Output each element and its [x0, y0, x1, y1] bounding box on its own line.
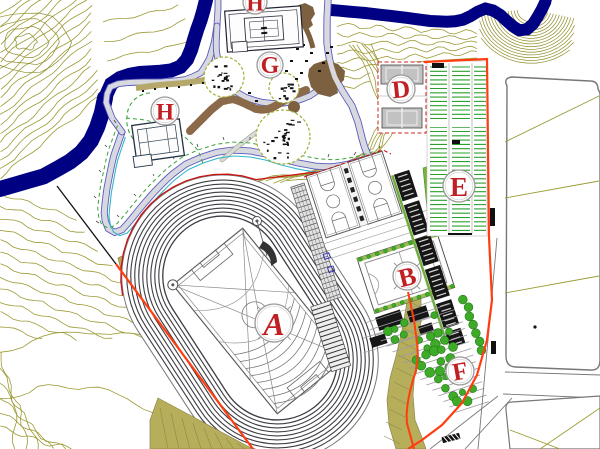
svg-text:G: G: [261, 53, 280, 79]
svg-text:E: E: [450, 172, 468, 202]
svg-text:D: D: [391, 76, 412, 105]
svg-text:H: H: [246, 0, 263, 16]
svg-text:A: A: [261, 306, 284, 342]
svg-text:H: H: [156, 100, 174, 125]
